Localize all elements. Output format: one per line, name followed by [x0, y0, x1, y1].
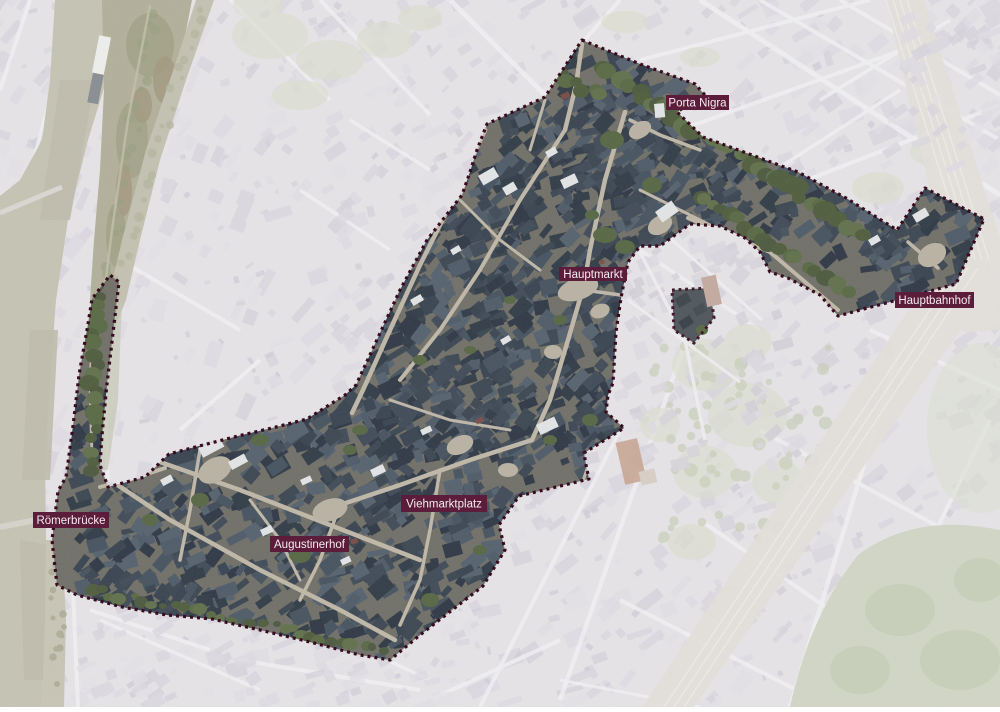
svg-text:Hauptmarkt: Hauptmarkt	[563, 269, 623, 281]
svg-text:Römerbrücke: Römerbrücke	[36, 515, 105, 527]
svg-text:Porta Nigra: Porta Nigra	[668, 98, 727, 110]
svg-text:Hauptbahnhof: Hauptbahnhof	[898, 295, 971, 307]
svg-text:Viehmarktplatz: Viehmarktplatz	[406, 499, 482, 511]
svg-text:Augustinerhof: Augustinerhof	[274, 539, 346, 551]
